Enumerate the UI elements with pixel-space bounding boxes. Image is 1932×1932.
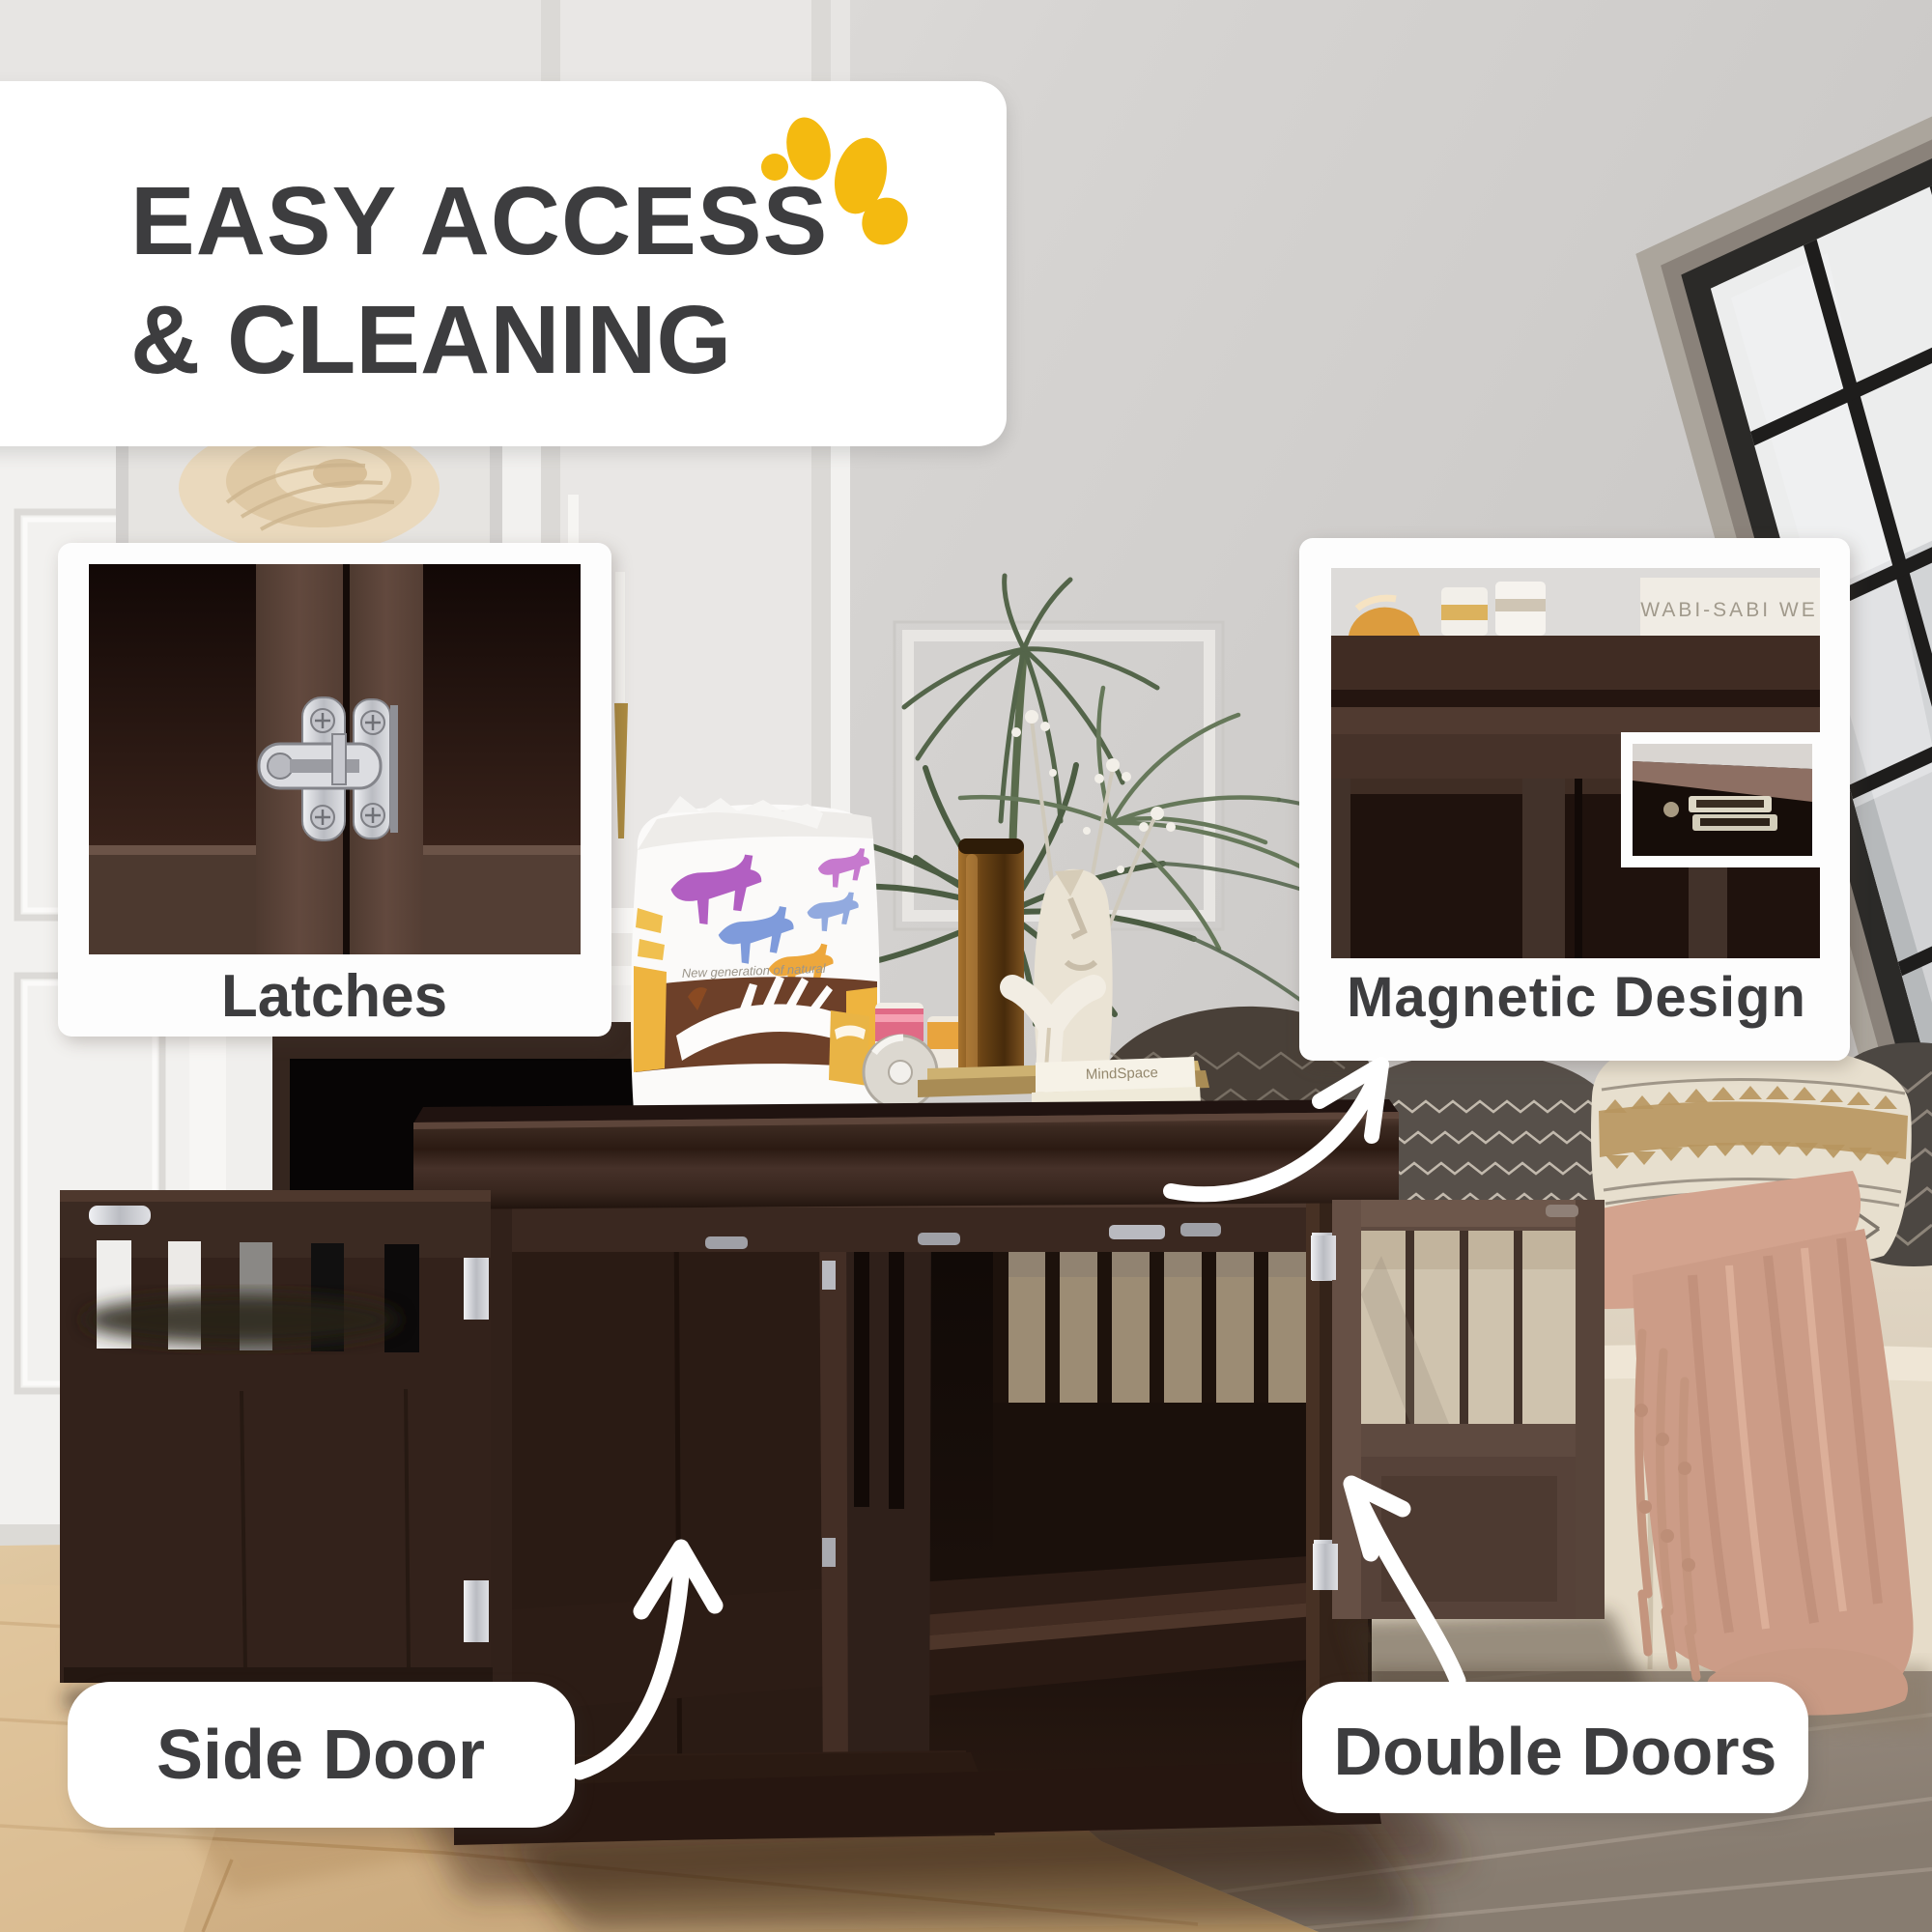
- svg-text:Double Doors: Double Doors: [1334, 1714, 1777, 1789]
- svg-text:MindSpace: MindSpace: [1086, 1065, 1158, 1083]
- svg-text:EASY ACCESS: EASY ACCESS: [130, 167, 828, 275]
- svg-text:Latches: Latches: [221, 963, 447, 1030]
- svg-text:& CLEANING: & CLEANING: [130, 286, 731, 394]
- svg-text:WABI-SABI WE: WABI-SABI WE: [1640, 599, 1817, 621]
- svg-text:Side Door: Side Door: [156, 1717, 485, 1794]
- svg-text:Magnetic Design: Magnetic Design: [1347, 966, 1806, 1029]
